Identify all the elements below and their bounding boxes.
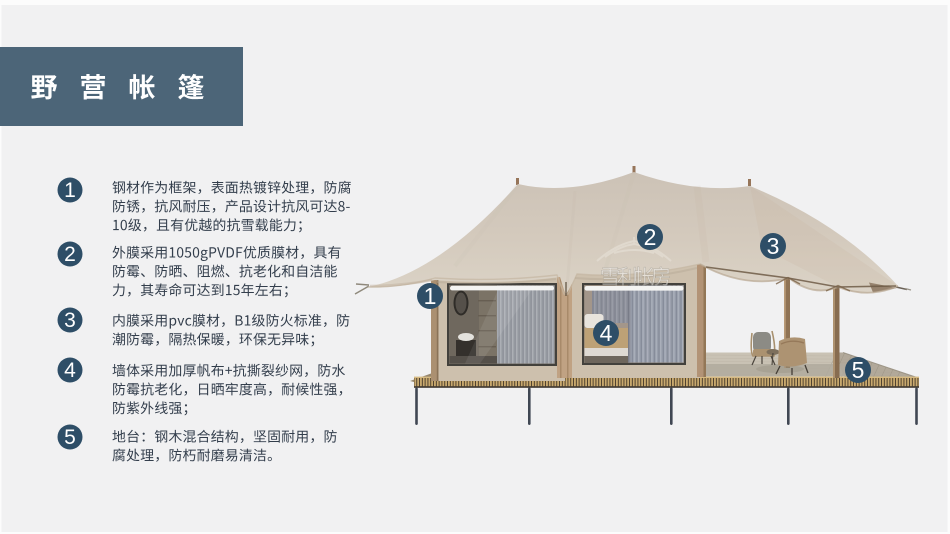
svg-text:5: 5 — [64, 426, 76, 449]
svg-text:3: 3 — [767, 233, 780, 259]
svg-text:2: 2 — [64, 243, 76, 266]
svg-text:4: 4 — [64, 359, 76, 382]
svg-text:2: 2 — [644, 224, 657, 250]
svg-text:4: 4 — [600, 320, 613, 346]
svg-text:3: 3 — [64, 309, 76, 332]
svg-text:5: 5 — [852, 357, 865, 383]
svg-text:1: 1 — [424, 283, 437, 309]
svg-text:1: 1 — [64, 179, 76, 202]
